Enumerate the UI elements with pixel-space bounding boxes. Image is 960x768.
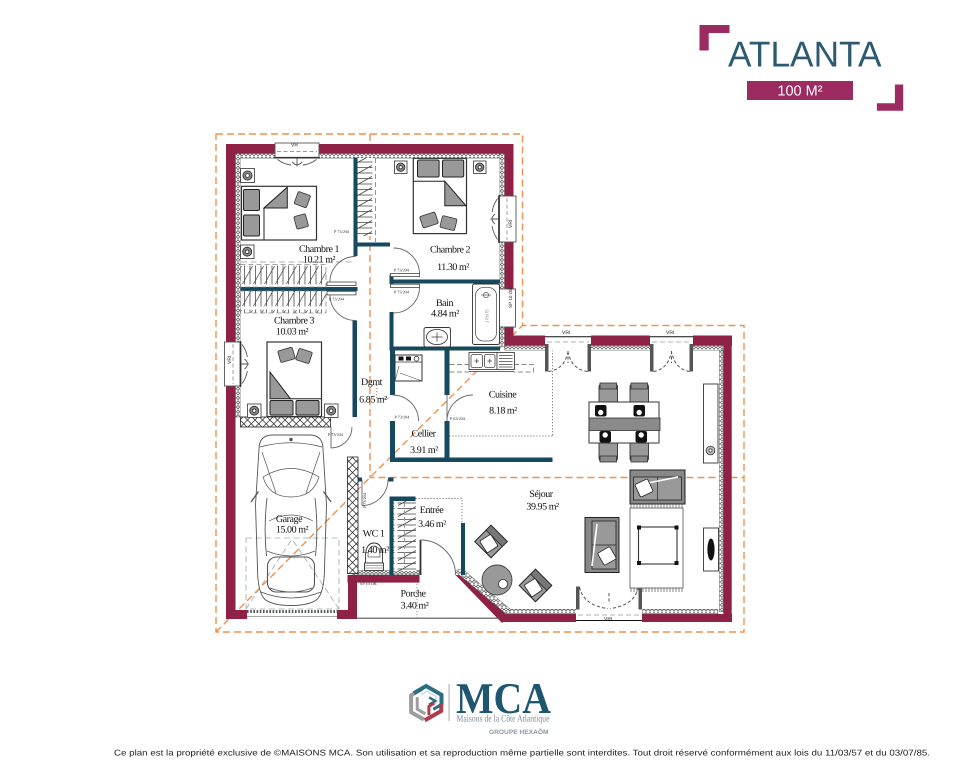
svg-text:P 73/204: P 73/204 xyxy=(362,492,367,508)
svg-text:3.91 m²: 3.91 m² xyxy=(410,445,438,456)
svg-text:10.03 m²: 10.03 m² xyxy=(276,327,309,338)
svg-text:ATLANTA: ATLANTA xyxy=(728,34,882,75)
svg-text:SP 10 OB: SP 10 OB xyxy=(508,288,513,308)
svg-text:GROUPE HEXAŌM: GROUPE HEXAŌM xyxy=(489,728,549,736)
svg-text:Dgmt: Dgmt xyxy=(361,377,383,388)
svg-text:Ce plan est la propriété exclu: Ce plan est la propriété exclusive de ©M… xyxy=(114,748,930,758)
svg-text:VR: VR xyxy=(291,143,298,149)
svg-text:SP 10 OB: SP 10 OB xyxy=(360,581,377,586)
svg-text:10.21 m²: 10.21 m² xyxy=(303,255,336,266)
svg-text:Porche: Porche xyxy=(400,589,426,600)
svg-text:15.00 m²: 15.00 m² xyxy=(276,525,309,536)
svg-text:Entrée: Entrée xyxy=(420,505,444,516)
svg-text:Cellier: Cellier xyxy=(411,429,436,440)
svg-text:170x75: 170x75 xyxy=(485,309,490,323)
svg-text:4.84 m²: 4.84 m² xyxy=(431,309,459,320)
svg-text:8.18 m²: 8.18 m² xyxy=(489,406,517,417)
svg-text:Maisons de la Côte Atlantique: Maisons de la Côte Atlantique xyxy=(457,714,550,725)
svg-text:Bain: Bain xyxy=(436,298,454,309)
svg-text:VRI: VRI xyxy=(604,617,612,623)
svg-text:6.85 m²: 6.85 m² xyxy=(359,395,387,406)
svg-text:Cuisine: Cuisine xyxy=(489,390,517,401)
svg-text:11.30 m²: 11.30 m² xyxy=(437,262,469,273)
svg-text:Chambre 3: Chambre 3 xyxy=(274,316,315,327)
svg-text:P 73/204: P 73/204 xyxy=(328,432,344,437)
svg-text:Garage: Garage xyxy=(276,514,303,525)
svg-text:VRI: VRI xyxy=(666,330,674,336)
svg-text:P 73/204: P 73/204 xyxy=(394,290,410,295)
svg-text:Chambre 1: Chambre 1 xyxy=(299,244,340,255)
svg-text:P 73/204: P 73/204 xyxy=(329,297,345,302)
svg-text:P 73/204: P 73/204 xyxy=(334,229,350,234)
svg-text:P 73/204: P 73/204 xyxy=(395,415,411,420)
svg-text:Chambre 2: Chambre 2 xyxy=(430,245,471,256)
svg-text:3.40 m²: 3.40 m² xyxy=(401,601,429,612)
svg-text:P 73/204: P 73/204 xyxy=(394,268,410,273)
svg-text:100 M²: 100 M² xyxy=(777,84,822,100)
svg-text:WC 1: WC 1 xyxy=(363,529,385,540)
svg-text:P 63/204: P 63/204 xyxy=(450,416,466,421)
svg-text:Séjour: Séjour xyxy=(529,489,554,500)
svg-text:3.46 m²: 3.46 m² xyxy=(418,519,446,530)
svg-text:VRI: VRI xyxy=(227,356,233,364)
svg-text:1.40 m²: 1.40 m² xyxy=(361,545,389,556)
svg-text:VRI: VRI xyxy=(562,330,570,336)
svg-text:VRI: VRI xyxy=(508,220,514,228)
svg-text:39.95 m²: 39.95 m² xyxy=(526,502,559,513)
